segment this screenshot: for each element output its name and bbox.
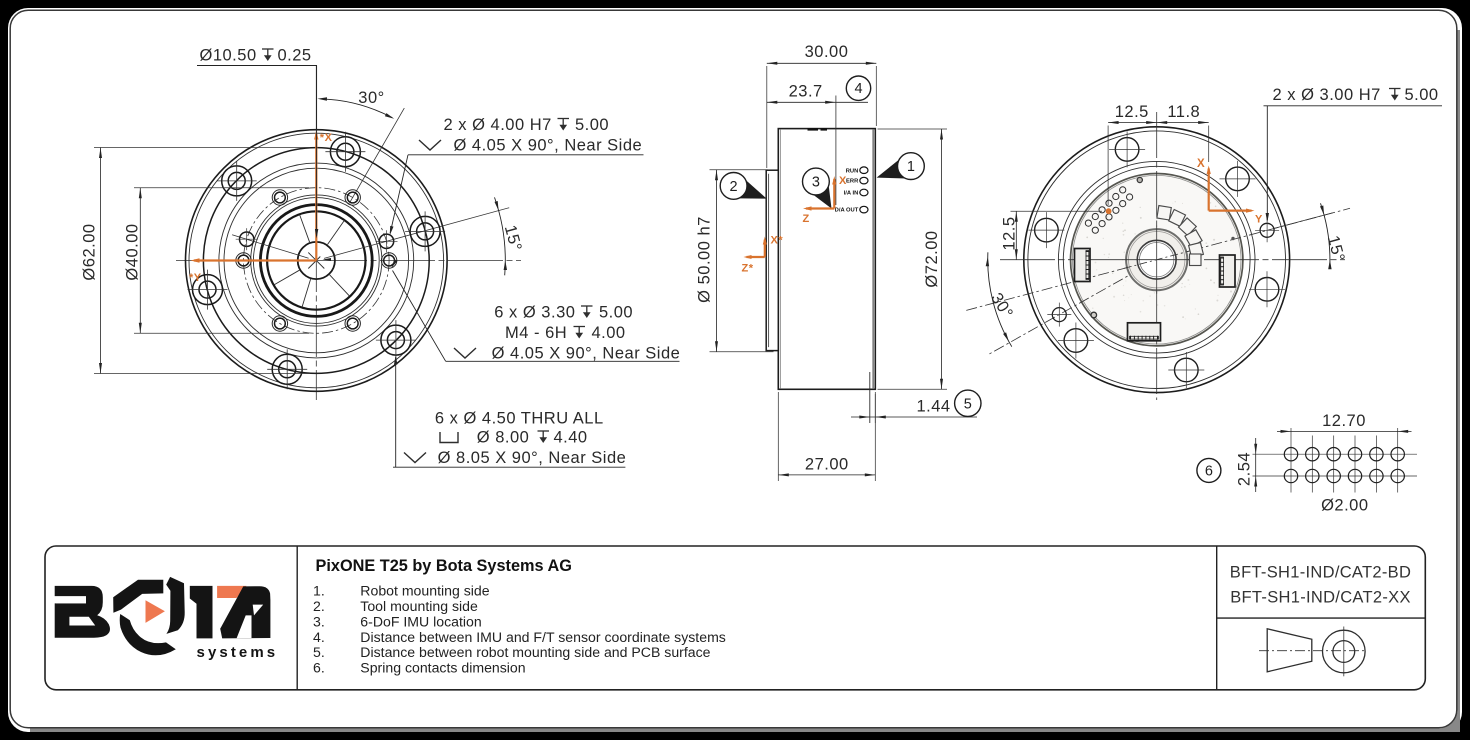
svg-text:2.: 2.: [313, 598, 325, 614]
svg-text:ERR: ERR: [846, 179, 859, 185]
svg-text:Ø 8.05 X 90°, Near Side: Ø 8.05 X 90°, Near Side: [438, 449, 627, 467]
svg-text:Ø 4.05 X 90°, Near Side: Ø 4.05 X 90°, Near Side: [454, 137, 643, 155]
svg-text:5.00: 5.00: [575, 116, 609, 134]
svg-text:*X: *X: [320, 132, 333, 144]
svg-text:3.: 3.: [313, 613, 325, 629]
svg-text:30.00: 30.00: [805, 43, 849, 61]
svg-text:5: 5: [964, 396, 972, 412]
svg-text:4.00: 4.00: [592, 324, 626, 342]
svg-text:PixONE T25 by Bota Systems AG: PixONE T25 by Bota Systems AG: [316, 557, 572, 575]
svg-text:Ø 4.05 X 90°, Near Side: Ø 4.05 X 90°, Near Side: [492, 345, 681, 363]
svg-text:12.5: 12.5: [1001, 216, 1019, 250]
svg-text:1.44: 1.44: [916, 398, 950, 416]
svg-text:X: X: [1197, 158, 1205, 170]
svg-text:2: 2: [730, 179, 738, 195]
svg-text:Ø 8.00: Ø 8.00: [477, 429, 530, 447]
svg-text:Y: Y: [1255, 214, 1263, 226]
svg-text:0.25: 0.25: [278, 47, 312, 65]
svg-text:27.00: 27.00: [805, 456, 849, 474]
svg-text:5.00: 5.00: [1405, 86, 1439, 104]
svg-text:Distance between IMU and F/T s: Distance between IMU and F/T sensor coor…: [360, 629, 726, 645]
svg-text:Ø10.50: Ø10.50: [200, 47, 257, 65]
svg-text:4: 4: [854, 81, 862, 97]
svg-text:12.70: 12.70: [1322, 412, 1366, 430]
svg-text:6-DoF IMU location: 6-DoF IMU location: [360, 613, 481, 629]
svg-text:2 x Ø 4.00 H7: 2 x Ø 4.00 H7: [444, 116, 552, 134]
svg-text:2.54: 2.54: [1236, 452, 1254, 486]
svg-text:6 x Ø 4.50 THRU ALL: 6 x Ø 4.50 THRU ALL: [435, 410, 604, 428]
svg-text:5.00: 5.00: [599, 304, 633, 322]
svg-text:1.: 1.: [313, 583, 325, 599]
svg-text:Spring contacts dimension: Spring contacts dimension: [360, 660, 525, 676]
svg-text:X*: X*: [771, 235, 784, 247]
svg-text:11.8: 11.8: [1167, 103, 1200, 121]
svg-text:Robot mounting side: Robot mounting side: [360, 583, 489, 599]
svg-text:Distance between robot mountin: Distance between robot mounting side and…: [360, 644, 710, 660]
svg-text:Ø40.00: Ø40.00: [124, 223, 142, 280]
svg-text:I/A IN: I/A IN: [844, 191, 859, 197]
svg-text:M4 - 6H: M4 - 6H: [505, 324, 567, 342]
svg-text:2 x Ø 3.00 H7: 2 x Ø 3.00 H7: [1273, 86, 1381, 104]
svg-text:23.7: 23.7: [789, 83, 823, 101]
svg-text:Ø 50.00 h7: Ø 50.00 h7: [696, 216, 714, 303]
svg-text:Ø62.00: Ø62.00: [81, 223, 99, 280]
svg-text:1: 1: [907, 159, 915, 175]
svg-text:6 x Ø 3.30: 6 x Ø 3.30: [494, 304, 575, 322]
svg-text:D/A OUT: D/A OUT: [835, 208, 859, 214]
svg-text:RUN: RUN: [846, 168, 859, 174]
svg-text:BFT-SH1-IND/CAT2-BD: BFT-SH1-IND/CAT2-BD: [1230, 564, 1411, 582]
svg-text:Ø72.00: Ø72.00: [923, 230, 941, 287]
svg-text:30°: 30°: [358, 89, 384, 107]
svg-text:6.: 6.: [313, 660, 325, 676]
svg-text:3: 3: [812, 175, 820, 191]
svg-text:Ø2.00: Ø2.00: [1321, 497, 1368, 515]
svg-text:4.: 4.: [313, 629, 325, 645]
svg-text:5.: 5.: [313, 644, 325, 660]
svg-text:systems: systems: [197, 644, 279, 661]
svg-text:X: X: [839, 175, 847, 187]
svg-text:Z*: Z*: [742, 263, 754, 275]
svg-text:4.40: 4.40: [554, 429, 588, 447]
svg-text:12.5: 12.5: [1115, 103, 1149, 121]
svg-text:BFT-SH1-IND/CAT2-XX: BFT-SH1-IND/CAT2-XX: [1230, 589, 1411, 607]
svg-text:Tool mounting side: Tool mounting side: [360, 598, 478, 614]
svg-text:Z: Z: [803, 213, 810, 225]
svg-text:6: 6: [1205, 463, 1213, 479]
svg-text:*Y: *Y: [189, 272, 202, 284]
